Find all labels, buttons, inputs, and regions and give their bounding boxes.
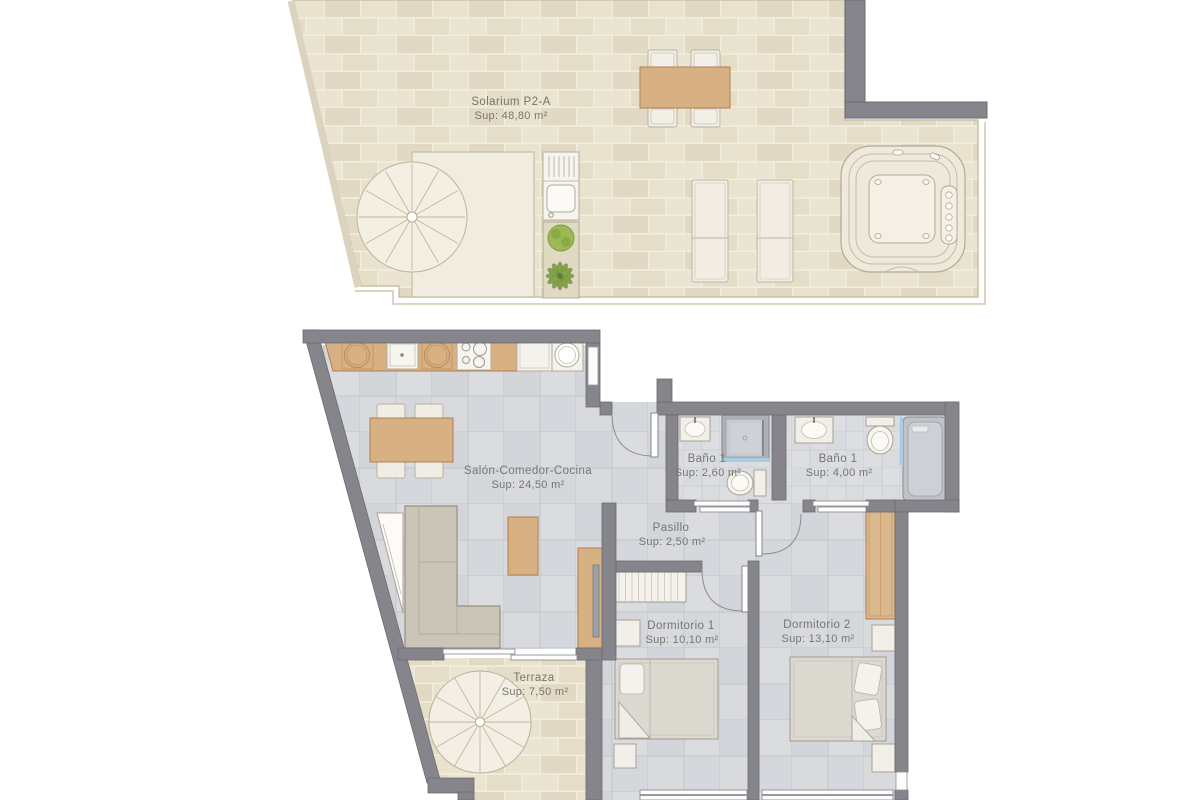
solarium-area: Sup: 48,80 m² — [475, 110, 548, 122]
bathtub-icon — [900, 417, 947, 501]
dormitorio1-area: Sup: 10,10 m² — [646, 634, 719, 646]
coffee-table-icon — [508, 517, 538, 575]
wall-living-bottom-left — [398, 648, 444, 660]
wall-living-bottom-right — [576, 648, 602, 660]
wall-bath-top-left — [600, 402, 612, 415]
tv-icon — [593, 565, 599, 637]
living-room-floor — [321, 345, 616, 649]
wall-terrace-step-h — [428, 778, 474, 793]
washbasin-icon — [680, 417, 710, 441]
floorplan-canvas: Solarium P2-A Sup: 48,80 m² — [0, 0, 1200, 800]
solarium-plan: Solarium P2-A Sup: 48,80 m² — [291, 0, 987, 304]
wall-kitchen-top — [303, 330, 600, 343]
wall-bath-bottom-a — [666, 500, 696, 512]
wall-bath-divider — [772, 415, 786, 500]
sun-lounger-icon — [692, 180, 728, 282]
salon-area: Sup: 24,50 m² — [492, 479, 565, 491]
apartment-plan: Salón-Comedor-Cocina Sup: 24,50 m² Baño … — [303, 330, 959, 800]
washbasin-icon — [795, 417, 833, 443]
wall-entry-pillar — [657, 379, 672, 402]
bano-small-name: Baño 1 — [688, 453, 727, 465]
bano-small-area: Sup: 2,60 m² — [675, 467, 742, 479]
dormitorio1-name: Dormitorio 1 — [647, 620, 714, 632]
wall-bath-small-left — [666, 415, 678, 500]
sun-lounger-icon — [757, 180, 793, 282]
shower-icon — [722, 415, 769, 462]
bed-icon — [615, 659, 718, 739]
wall-bath-bottom-right — [893, 500, 959, 512]
double-bed-icon — [790, 657, 886, 741]
dormitorio2-name: Dormitorio 2 — [783, 619, 850, 631]
nightstand-icon — [872, 744, 895, 772]
pasillo-area: Sup: 2,50 m² — [639, 536, 706, 548]
wall-bedroom1-top — [614, 561, 702, 572]
wall-bedroom-divider — [748, 561, 759, 800]
bush-plant-icon — [548, 225, 574, 251]
shower-glass — [722, 458, 769, 462]
bano-big-name: Baño 1 — [819, 453, 858, 465]
entrance-threshold-floor — [612, 402, 657, 416]
terraza-area: Sup: 7,50 m² — [502, 686, 569, 698]
nightstand-icon — [872, 625, 895, 651]
kitchen-sink-icon — [387, 341, 418, 369]
wall-bedroom2-right — [895, 512, 908, 772]
pillow-icon — [854, 662, 883, 696]
nightstand-icon — [614, 620, 640, 646]
bano-big-area: Sup: 4,00 m² — [806, 467, 873, 479]
wardrobe-icon — [613, 572, 686, 602]
wall-bath-top — [657, 402, 957, 415]
pasillo-name: Pasillo — [653, 522, 690, 534]
bedroom2-side-window — [896, 772, 907, 790]
wall-bath-bottom-d — [866, 500, 895, 512]
floorplan-svg: Solarium P2-A Sup: 48,80 m² — [0, 0, 1200, 800]
stove-hob-icon — [457, 339, 491, 370]
solarium-name: Solarium P2-A — [471, 96, 550, 108]
wall-terrace-step-v — [458, 792, 474, 800]
wardrobe-icon — [866, 509, 895, 619]
bathtub-glass — [900, 417, 903, 465]
jacuzzi-icon — [841, 146, 965, 272]
tv-unit-icon — [578, 548, 602, 648]
solarium-planter-icon — [543, 222, 579, 298]
entry-door-frame — [588, 347, 598, 385]
wall-bedroom2-right-lower — [895, 790, 908, 800]
salon-name: Salón-Comedor-Cocina — [464, 465, 592, 477]
nightstand-icon — [614, 744, 636, 768]
solarium-wall — [845, 0, 987, 118]
wall-tv — [602, 503, 616, 660]
toilet-icon — [866, 417, 894, 454]
dormitorio2-area: Sup: 13,10 m² — [782, 633, 855, 645]
wall-bath-right — [945, 402, 959, 512]
terraza-name: Terraza — [513, 672, 554, 684]
wall-terrace-right — [586, 648, 602, 800]
pillow-icon — [620, 664, 644, 694]
solarium-sink-unit-icon — [543, 152, 579, 220]
